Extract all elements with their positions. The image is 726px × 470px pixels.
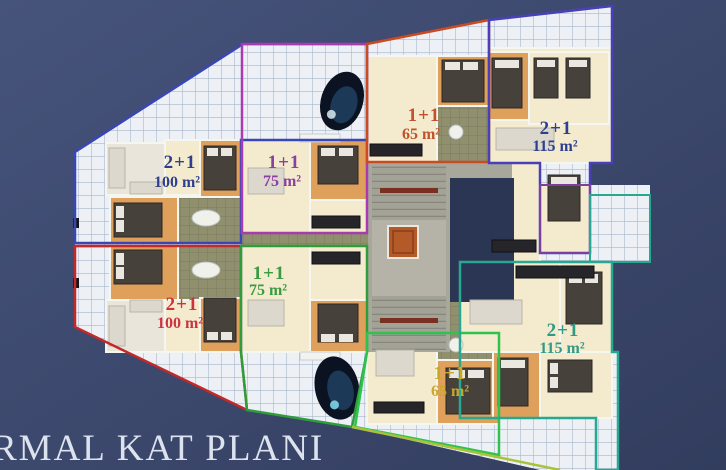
unit-label-area: 65 m² — [402, 126, 440, 143]
page-title: RMAL KAT PLANI — [0, 428, 324, 469]
unit-label-type: 1+1 — [434, 363, 467, 384]
unit-label-type: 1+1 — [253, 263, 286, 284]
unit-label-type: 2+1 — [166, 294, 199, 315]
unit-label-area: 75 m² — [263, 173, 301, 190]
floor-plan-page: 2+1 100 m² 1+1 75 m² 1+1 65 m² 2+1 115 m… — [0, 0, 726, 470]
unit-label-type: 2+1 — [164, 152, 197, 173]
unit-label-area: 100 m² — [154, 174, 200, 191]
unit-label-area: 115 m² — [532, 138, 577, 155]
core-base — [450, 163, 512, 178]
unit-label-type: 1+1 — [408, 105, 441, 126]
unit-label-type: 2+1 — [540, 118, 573, 139]
floor-plan-canvas: 2+1 100 m² 1+1 75 m² 1+1 65 m² 2+1 115 m… — [0, 0, 726, 470]
handrail — [380, 188, 438, 193]
unit-label-area: 100 m² — [157, 315, 203, 332]
living-room — [242, 246, 310, 352]
unit-label-type: 1+1 — [268, 152, 301, 173]
unit-label-area: 75 m² — [249, 282, 287, 299]
unit-label-area: 65 m² — [431, 383, 469, 400]
balcony — [590, 195, 650, 262]
unit-label-type: 2+1 — [547, 320, 580, 341]
unit-label-area: 115 m² — [539, 340, 584, 357]
handrail — [380, 318, 438, 323]
corridor — [241, 233, 372, 246]
